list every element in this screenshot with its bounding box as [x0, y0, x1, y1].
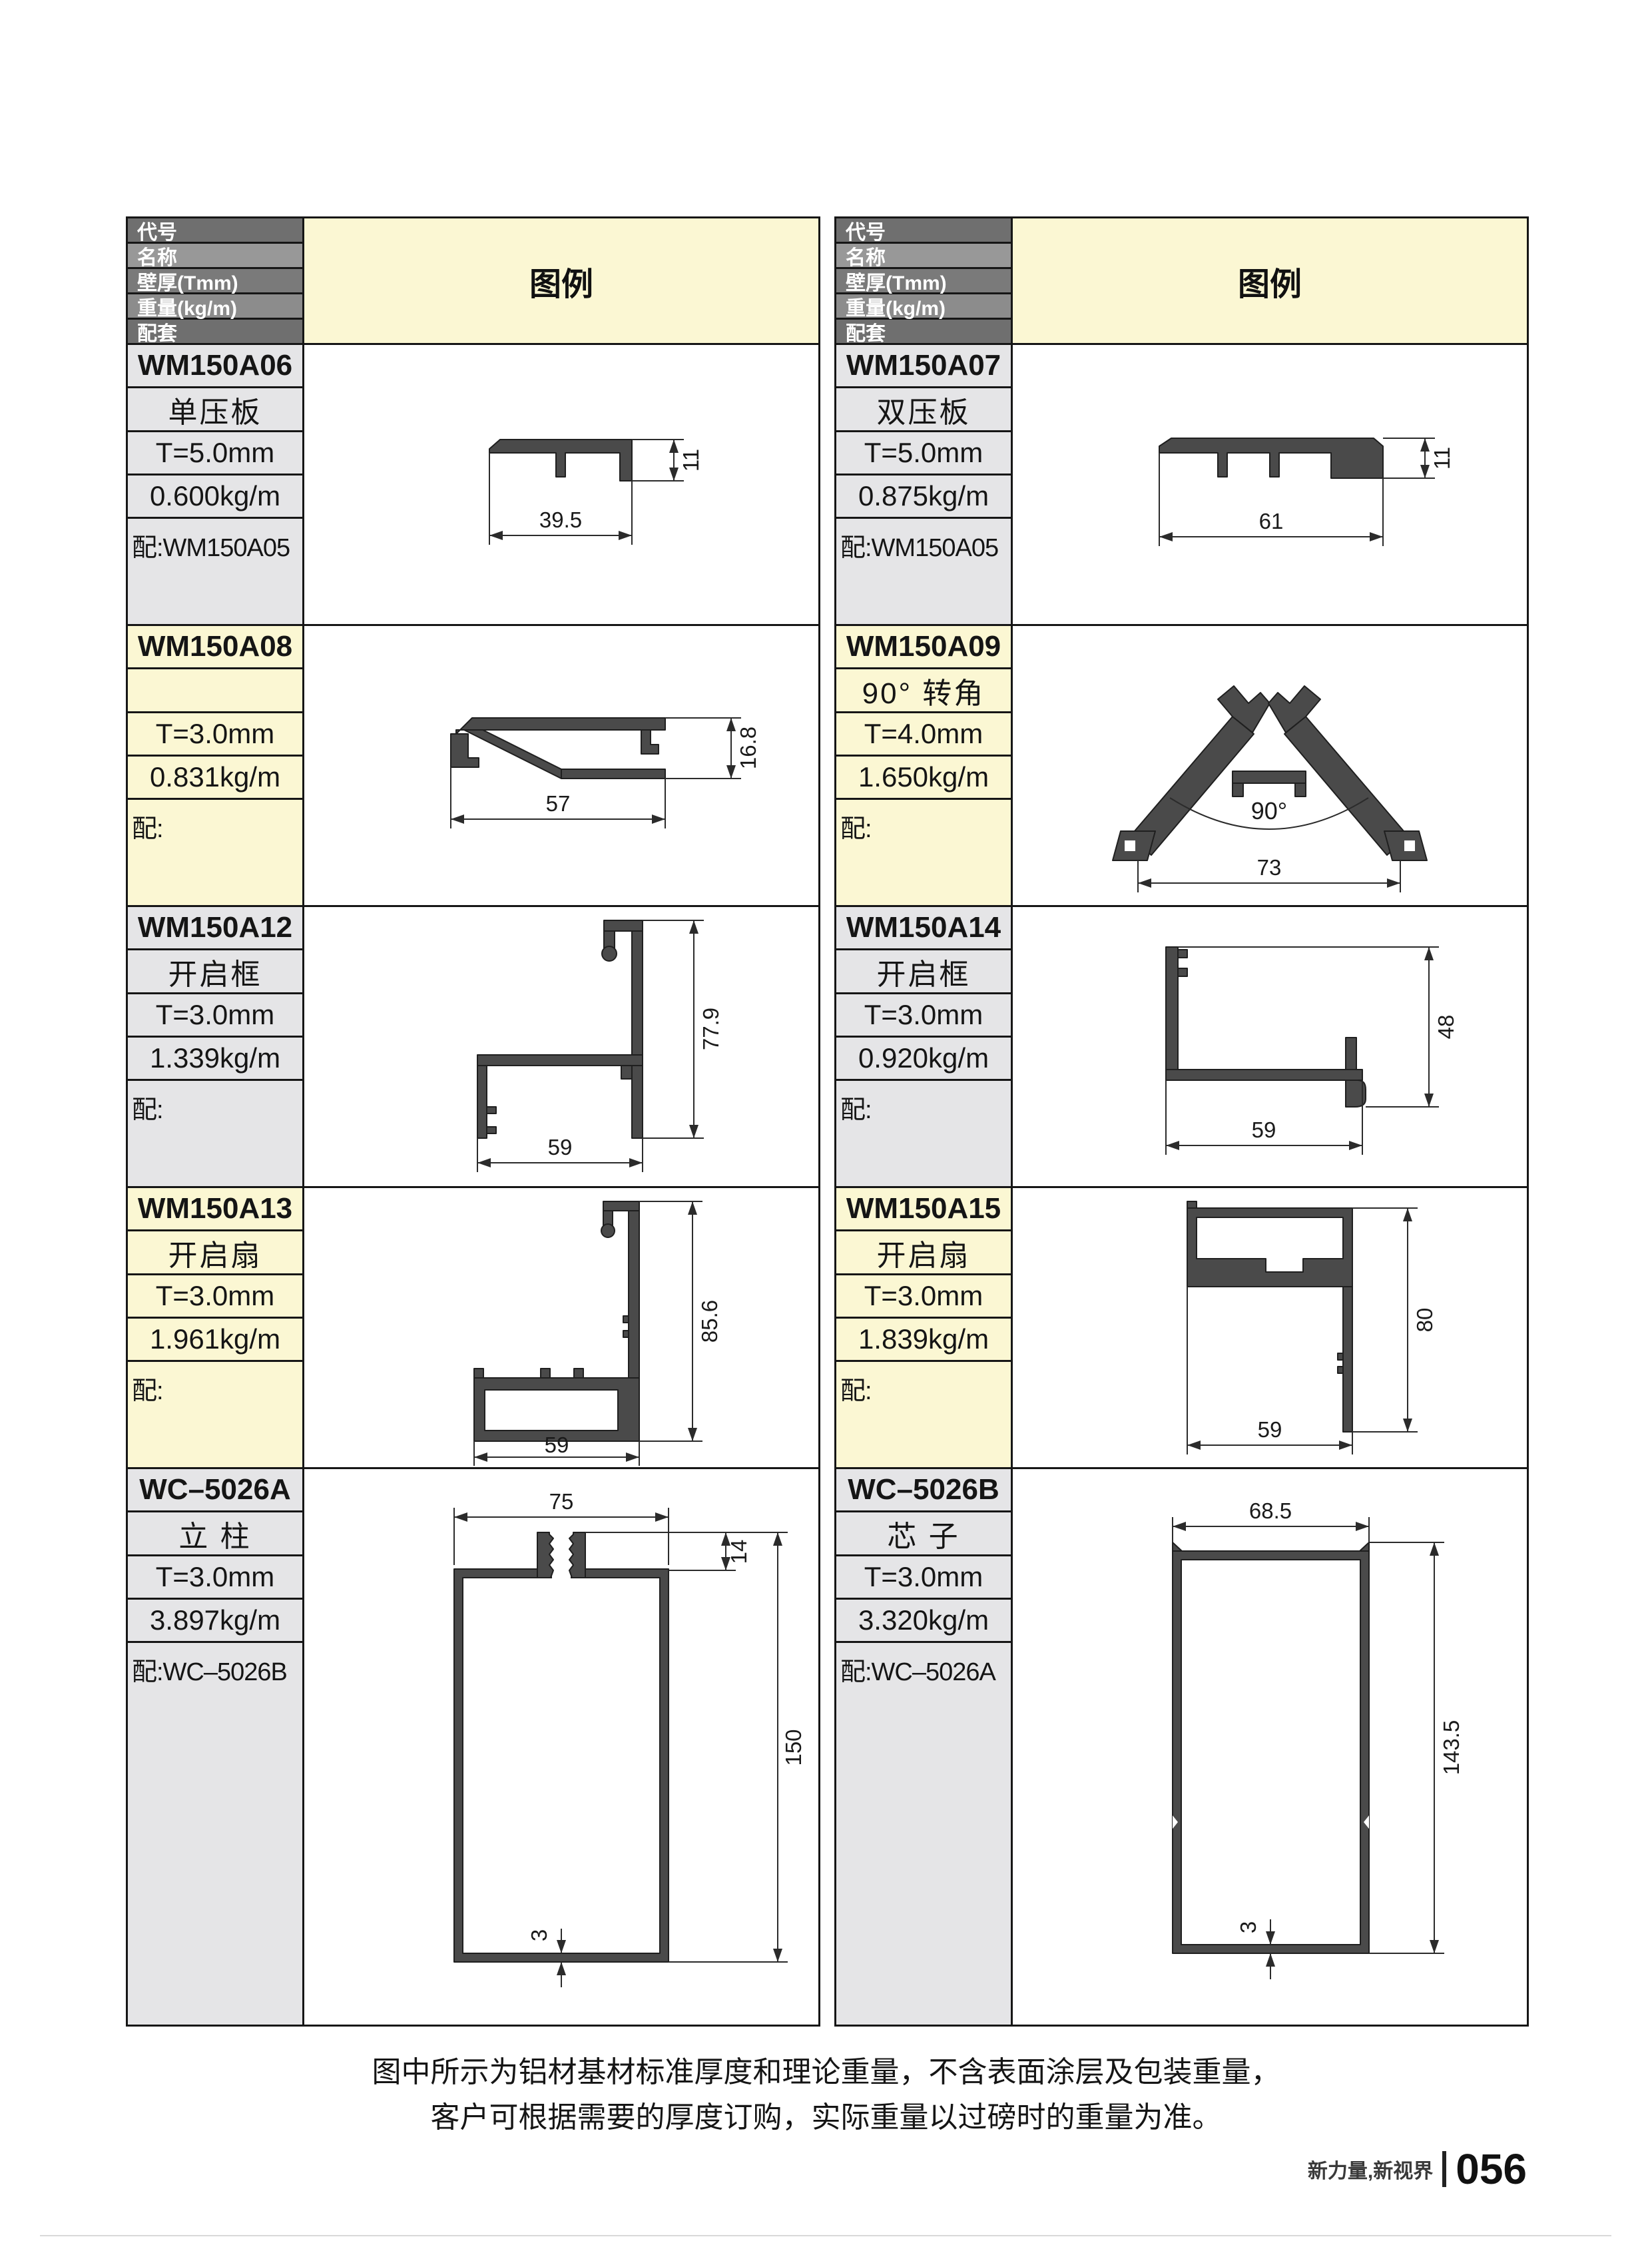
spec-thickness: T=5.0mm	[836, 432, 1011, 474]
spec-code: WM150A12	[128, 907, 302, 948]
dim-height: 77.9	[698, 1008, 723, 1050]
spec-name: 芯 子	[836, 1512, 1011, 1554]
header-row-thickness: 壁厚(Tmm)	[128, 269, 302, 292]
spec-weight: 0.831kg/m	[128, 757, 302, 798]
spec-weight: 1.839kg/m	[836, 1319, 1011, 1360]
profile-drawing-WM150A13: 85.6 59	[304, 1188, 818, 1467]
dim-angle: 90°	[1251, 797, 1287, 824]
diagram-cell: 77.9 59	[304, 907, 818, 1186]
catalog-page: 代号 名称 壁厚(Tmm) 重量(kg/m) 配套 WM150A06 单压板 T…	[0, 0, 1652, 2241]
dim-height: 143.5	[1439, 1720, 1464, 1775]
profile-drawing-WM150A07: 11 61	[1013, 345, 1527, 624]
dim-width: 59	[1252, 1118, 1276, 1142]
spec-match: 配:WC–5026A	[836, 1643, 1011, 2025]
spec-code: WM150A06	[128, 345, 302, 386]
spec-weight: 3.320kg/m	[836, 1600, 1011, 1641]
dim-width: 57	[546, 791, 571, 816]
profile-drawing-WC5026B: 68.5 143.5 3	[1013, 1469, 1527, 2025]
dim-wall: 3	[527, 1929, 551, 1941]
dim-width: 75	[549, 1489, 574, 1514]
diagram-cell: 75 14 150 3	[304, 1469, 818, 2025]
header-row-match: 配套	[836, 320, 1011, 343]
spec-code: WC–5026B	[836, 1469, 1011, 1510]
spec-thickness: T=3.0mm	[128, 994, 302, 1036]
info-column-right: 代号 名称 壁厚(Tmm) 重量(kg/m) 配套 WM150A07 双压板 T…	[836, 218, 1011, 2025]
diagram-cell: 48 59	[1013, 907, 1527, 1186]
spec-match: 配:	[128, 1362, 302, 1467]
spec-thickness: T=3.0mm	[128, 713, 302, 755]
footnote: 图中所示为铝材基材标准厚度和理论重量，不含表面涂层及包装重量， 客户可根据需要的…	[0, 2050, 1652, 2140]
profile-drawing-WC5026A: 75 14 150 3	[304, 1469, 818, 2025]
spec-table-left: 代号 名称 壁厚(Tmm) 重量(kg/m) 配套 WM150A06 单压板 T…	[126, 216, 820, 2027]
spec-weight: 1.961kg/m	[128, 1319, 302, 1360]
dim-height: 11	[679, 449, 703, 472]
spec-thickness: T=3.0mm	[836, 994, 1011, 1036]
legend-header: 图例	[1013, 218, 1527, 343]
page-bottom-edge	[40, 2235, 1611, 2236]
spec-code: WM150A09	[836, 626, 1011, 667]
dim-height: 48	[1434, 1015, 1458, 1040]
dim-height: 150	[781, 1729, 806, 1765]
spec-name: 开启扇	[128, 1231, 302, 1273]
header-row-code: 代号	[128, 218, 302, 242]
footer-slogan: 新力量,新视界	[1308, 2154, 1433, 2184]
spec-name: 90° 转角	[836, 669, 1011, 711]
spec-match: 配:	[836, 1081, 1011, 1186]
footer-divider	[1442, 2151, 1446, 2187]
spec-name: 双压板	[836, 388, 1011, 430]
dim-width: 59	[1258, 1417, 1282, 1442]
header-row-name: 名称	[128, 244, 302, 267]
profile-drawing-WM150A15: 80 59	[1013, 1188, 1527, 1467]
footnote-line-2: 客户可根据需要的厚度订购，实际重量以过磅时的重量为准。	[0, 2095, 1652, 2140]
spec-name	[128, 669, 302, 711]
spec-weight: 3.897kg/m	[128, 1600, 302, 1641]
spec-name: 开启扇	[836, 1231, 1011, 1273]
spec-name: 立 柱	[128, 1512, 302, 1554]
dim-width: 61	[1259, 509, 1284, 533]
spec-thickness: T=3.0mm	[836, 1275, 1011, 1317]
spec-match: 配:	[128, 1081, 302, 1186]
spec-code: WC–5026A	[128, 1469, 302, 1510]
spec-thickness: T=5.0mm	[128, 432, 302, 474]
dim-height: 11	[1430, 447, 1454, 470]
spec-weight: 0.875kg/m	[836, 476, 1011, 517]
spec-name: 开启框	[128, 950, 302, 992]
profile-drawing-WM150A06: 11 39.5	[304, 345, 818, 624]
diagram-cell: 80 59	[1013, 1188, 1527, 1467]
spec-thickness: T=3.0mm	[128, 1556, 302, 1598]
spec-code: WM150A15	[836, 1188, 1011, 1229]
page-number: 056	[1456, 2144, 1527, 2194]
spec-weight: 1.339kg/m	[128, 1038, 302, 1079]
profile-drawing-WM150A08: 16.8 57	[304, 626, 818, 905]
diagram-column-right: 图例 11 61	[1013, 218, 1527, 2025]
diagram-cell: 11 61	[1013, 345, 1527, 624]
header-row-match: 配套	[128, 320, 302, 343]
spec-code: WM150A14	[836, 907, 1011, 948]
header-row-code: 代号	[836, 218, 1011, 242]
spec-thickness: T=4.0mm	[836, 713, 1011, 755]
spec-match: 配:	[128, 800, 302, 905]
profile-drawing-WM150A09: 90° 73	[1013, 626, 1527, 905]
dim-wall: 3	[1236, 1921, 1260, 1933]
profile-drawing-WM150A14: 48 59	[1013, 907, 1527, 1186]
legend-header: 图例	[304, 218, 818, 343]
dim-width: 73	[1257, 855, 1282, 880]
spec-thickness: T=3.0mm	[836, 1556, 1011, 1598]
spec-match: 配:WM150A05	[836, 519, 1011, 624]
header-row-weight: 重量(kg/m)	[128, 294, 302, 318]
diagram-cell: 11 39.5	[304, 345, 818, 624]
spec-name: 开启框	[836, 950, 1011, 992]
dim-height: 85.6	[697, 1300, 722, 1343]
header-row-name: 名称	[836, 244, 1011, 267]
spec-weight: 0.920kg/m	[836, 1038, 1011, 1079]
dim-height: 16.8	[736, 727, 760, 769]
info-column-left: 代号 名称 壁厚(Tmm) 重量(kg/m) 配套 WM150A06 单压板 T…	[128, 218, 302, 2025]
spec-weight: 0.600kg/m	[128, 476, 302, 517]
spec-match: 配:WC–5026B	[128, 1643, 302, 2025]
diagram-cell: 90° 73	[1013, 626, 1527, 905]
dim-top: 14	[726, 1540, 751, 1564]
spec-name: 单压板	[128, 388, 302, 430]
spec-match: 配:WM150A05	[128, 519, 302, 624]
profile-drawing-WM150A12: 77.9 59	[304, 907, 818, 1186]
header-row-thickness: 壁厚(Tmm)	[836, 269, 1011, 292]
dim-width: 59	[545, 1433, 569, 1457]
dim-width: 59	[548, 1135, 573, 1159]
spec-match: 配:	[836, 1362, 1011, 1467]
diagram-cell: 85.6 59	[304, 1188, 818, 1467]
footnote-line-1: 图中所示为铝材基材标准厚度和理论重量，不含表面涂层及包装重量，	[0, 2050, 1652, 2095]
spec-code: WM150A07	[836, 345, 1011, 386]
diagram-cell: 16.8 57	[304, 626, 818, 905]
diagram-cell: 68.5 143.5 3	[1013, 1469, 1527, 2025]
spec-code: WM150A13	[128, 1188, 302, 1229]
dim-width: 39.5	[539, 507, 582, 532]
spec-thickness: T=3.0mm	[128, 1275, 302, 1317]
spec-weight: 1.650kg/m	[836, 757, 1011, 798]
spec-match: 配:	[836, 800, 1011, 905]
page-footer: 新力量,新视界 056	[834, 2144, 1527, 2194]
spec-code: WM150A08	[128, 626, 302, 667]
spec-table-right: 代号 名称 壁厚(Tmm) 重量(kg/m) 配套 WM150A07 双压板 T…	[834, 216, 1529, 2027]
dim-width: 68.5	[1249, 1498, 1292, 1523]
header-row-weight: 重量(kg/m)	[836, 294, 1011, 318]
dim-height: 80	[1412, 1308, 1437, 1333]
diagram-column-left: 图例 11 39.5	[304, 218, 818, 2025]
